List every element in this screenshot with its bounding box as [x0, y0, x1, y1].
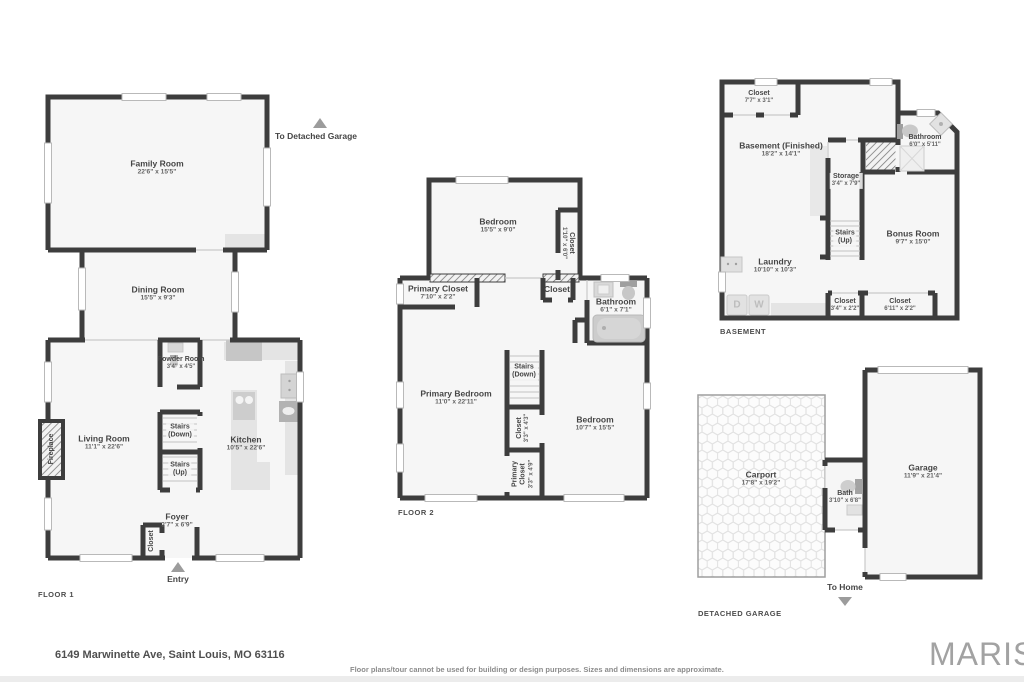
sink	[847, 505, 862, 515]
room-name: Primary Closet	[512, 454, 529, 494]
floor1-section-label: FLOOR 1	[38, 590, 74, 599]
family-room-label: Family Room 22'6" x 15'5"	[130, 159, 183, 178]
stairs-up-label: Stairs (Up)	[168, 462, 191, 479]
room-name: Storage	[832, 173, 861, 181]
room-name: Kitchen	[227, 435, 266, 445]
entry-text: Entry	[167, 574, 189, 584]
room-sub: (Up)	[835, 238, 854, 246]
to-home-label: To Home	[827, 582, 863, 592]
basement-closet-long-label: Closet 6'11" x 2'2"	[884, 298, 916, 314]
room-name: Primary Bedroom	[420, 389, 491, 399]
room-dims: 15'5" x 9'0"	[479, 227, 516, 236]
bottom-strip	[0, 676, 1024, 682]
room-dims: 10'7" x 15'5"	[576, 425, 615, 434]
dishwasher	[281, 374, 298, 398]
room-dims: 10'10" x 10'3"	[754, 267, 796, 276]
detached-garage-section-label: DETACHED GARAGE	[698, 609, 782, 618]
basement-plan	[719, 79, 958, 319]
room-name: Bathroom	[596, 297, 636, 307]
detached-garage-plan	[698, 367, 980, 607]
room-name: Bedroom	[479, 217, 516, 227]
room-dims: 10'5" x 22'6"	[227, 445, 266, 454]
basement-bathroom-label: Bathroom 6'0" x 5'11"	[908, 134, 941, 150]
bedroom-top-label: Bedroom 15'5" x 9'0"	[479, 217, 516, 236]
floor2-plan	[397, 177, 651, 502]
room-name: Closet	[745, 90, 774, 98]
room-name: Closet	[148, 530, 156, 551]
room-dims: 22'6" x 15'5"	[130, 169, 183, 178]
room-dims: 3'4" x 4'5"	[157, 364, 205, 372]
refrigerator	[226, 340, 262, 361]
room-dims: 6'11" x 2'2"	[884, 306, 916, 314]
kitchen-label: Kitchen 10'5" x 22'6"	[227, 435, 266, 454]
room-name: Garage	[904, 463, 942, 473]
laundry-counter	[771, 303, 827, 317]
room-dims: 7'10" x 2'2"	[408, 294, 468, 303]
room-dims: 11'9" x 21'4"	[904, 473, 942, 482]
room-dims: 3'3" x 4'9"	[528, 454, 536, 494]
to-home-text: To Home	[827, 582, 863, 592]
to-home-arrow-icon	[838, 597, 852, 606]
floor2-section-label: FLOOR 2	[398, 508, 434, 517]
room-name: Stairs	[168, 424, 192, 432]
mid-closet-label: Closet 3'3" x 4'3"	[516, 414, 532, 443]
room-name: Living Room	[78, 434, 129, 444]
unexcavated-hatch	[866, 143, 896, 170]
entry-label: Entry	[167, 574, 189, 584]
room-name: Basement (Finished)	[739, 141, 823, 151]
room-dims: 6'0" x 5'11"	[908, 142, 941, 150]
entry-arrow-icon	[171, 562, 185, 572]
storage-label: Storage 3'4" x 7'9"	[830, 173, 863, 189]
room-name: Bedroom	[576, 415, 615, 425]
room-sub: (Down)	[512, 372, 536, 380]
to-garage-text: To Detached Garage	[275, 131, 357, 141]
room-dims: 3'10" x 6'8"	[829, 498, 861, 506]
room-dims: 9'7" x 15'0"	[887, 239, 940, 248]
room-dims: 3'3" x 4'3"	[524, 414, 532, 443]
room-name: Carport	[742, 470, 781, 480]
basement-finished-label: Basement (Finished) 18'2" x 14'1"	[739, 141, 823, 160]
washer-letter: W	[754, 300, 763, 311]
disclaimer-text: Floor plans/tour cannot be used for buil…	[350, 665, 724, 674]
stove	[233, 392, 255, 420]
powder-room-label: Powder Room 3'4" x 4'5"	[157, 356, 205, 372]
room-dims: 7'7" x 3'1"	[745, 98, 774, 106]
room-name: Closet	[544, 284, 570, 294]
room-name: Fireplace	[48, 434, 56, 465]
living-room-label: Living Room 11'1" x 22'6"	[78, 434, 129, 453]
basement-stairs-up-label: Stairs (Up)	[833, 230, 856, 247]
room-name: Primary Closet	[408, 284, 468, 294]
room-name: Closet	[831, 298, 860, 306]
room-name: Powder Room	[157, 356, 205, 364]
laundry-label: Laundry 10'10" x 10'3"	[754, 257, 796, 276]
dryer-letter: D	[733, 300, 740, 311]
room-name: Bathroom	[908, 134, 941, 142]
room-name: Stairs	[835, 230, 854, 238]
dining-room-label: Dining Room 15'5" x 9'3"	[132, 285, 185, 304]
foyer-label: Foyer 3'7" x 6'9"	[161, 512, 192, 531]
room-name: Dining Room	[132, 285, 185, 295]
room-dims: 3'7" x 6'9"	[161, 522, 192, 531]
primary-closet-label: Primary Closet 7'10" x 2'2"	[408, 284, 468, 303]
bedroom-right-label: Bedroom 10'7" x 15'5"	[576, 415, 615, 434]
bedroom-closet-label: Closet 1'10" x 6'0"	[559, 227, 575, 259]
room-name: Stairs	[512, 364, 536, 372]
primary-bedroom-label: Primary Bedroom 11'0" x 22'11"	[420, 389, 491, 408]
room-name: Closet	[884, 298, 916, 306]
room-name: Closet	[567, 227, 575, 259]
garage-bath-label: Bath 3'10" x 6'8"	[829, 490, 861, 506]
room-dims: 3'4" x 7'9"	[832, 181, 861, 189]
room-name: Bath	[829, 490, 861, 498]
room-dims: 11'0" x 22'11"	[420, 399, 491, 408]
basement-section-label: BASEMENT	[720, 327, 766, 336]
room-sub: (Down)	[168, 432, 192, 440]
foyer-closet-label: Closet	[148, 530, 156, 551]
bonus-room-label: Bonus Room 9'7" x 15'0"	[887, 229, 940, 248]
room-name: Laundry	[754, 257, 796, 267]
basement-closet-small-label: Closet 3'4" x 2'2"	[831, 298, 860, 314]
room-dims: 11'1" x 22'6"	[78, 444, 129, 453]
floor2-bathroom-label: Bathroom 6'1" x 7'1"	[596, 297, 636, 316]
room-name: Stairs	[170, 462, 189, 470]
floor2-stairs-down-label: Stairs (Down)	[510, 364, 538, 381]
room-name: Family Room	[130, 159, 183, 169]
floorplan-drawing	[0, 0, 1024, 682]
room-dims: 1'10" x 6'0"	[559, 227, 567, 259]
room-name: Bonus Room	[887, 229, 940, 239]
room-dims: 3'4" x 2'2"	[831, 306, 860, 314]
basement-closet-top-label: Closet 7'7" x 3'1"	[745, 90, 774, 106]
maris-logo: MARIS	[929, 636, 1024, 673]
property-address: 6149 Marwinette Ave, Saint Louis, MO 631…	[55, 649, 285, 661]
room-dims: 15'5" x 9'3"	[132, 295, 185, 304]
room-dims: 6'1" x 7'1"	[596, 307, 636, 316]
to-detached-garage-label: To Detached Garage	[275, 131, 357, 141]
primary-closet-small-label: Primary Closet 3'3" x 4'9"	[512, 454, 537, 494]
room-sub: (Up)	[170, 470, 189, 478]
garage-label: Garage 11'9" x 21'4"	[904, 463, 942, 482]
to-garage-arrow-icon	[313, 118, 327, 128]
room-name: Foyer	[161, 512, 192, 522]
stairs-down-label: Stairs (Down)	[166, 424, 194, 441]
utility-sink	[721, 257, 742, 272]
carport-label: Carport 17'8" x 19'2"	[742, 470, 781, 489]
room-name: Closet	[516, 414, 524, 443]
fireplace-label: Fireplace	[48, 434, 56, 465]
room-dims: 18'2" x 14'1"	[739, 151, 823, 160]
room-dims: 17'8" x 19'2"	[742, 480, 781, 489]
hall-closet-label: Closet	[544, 284, 570, 294]
